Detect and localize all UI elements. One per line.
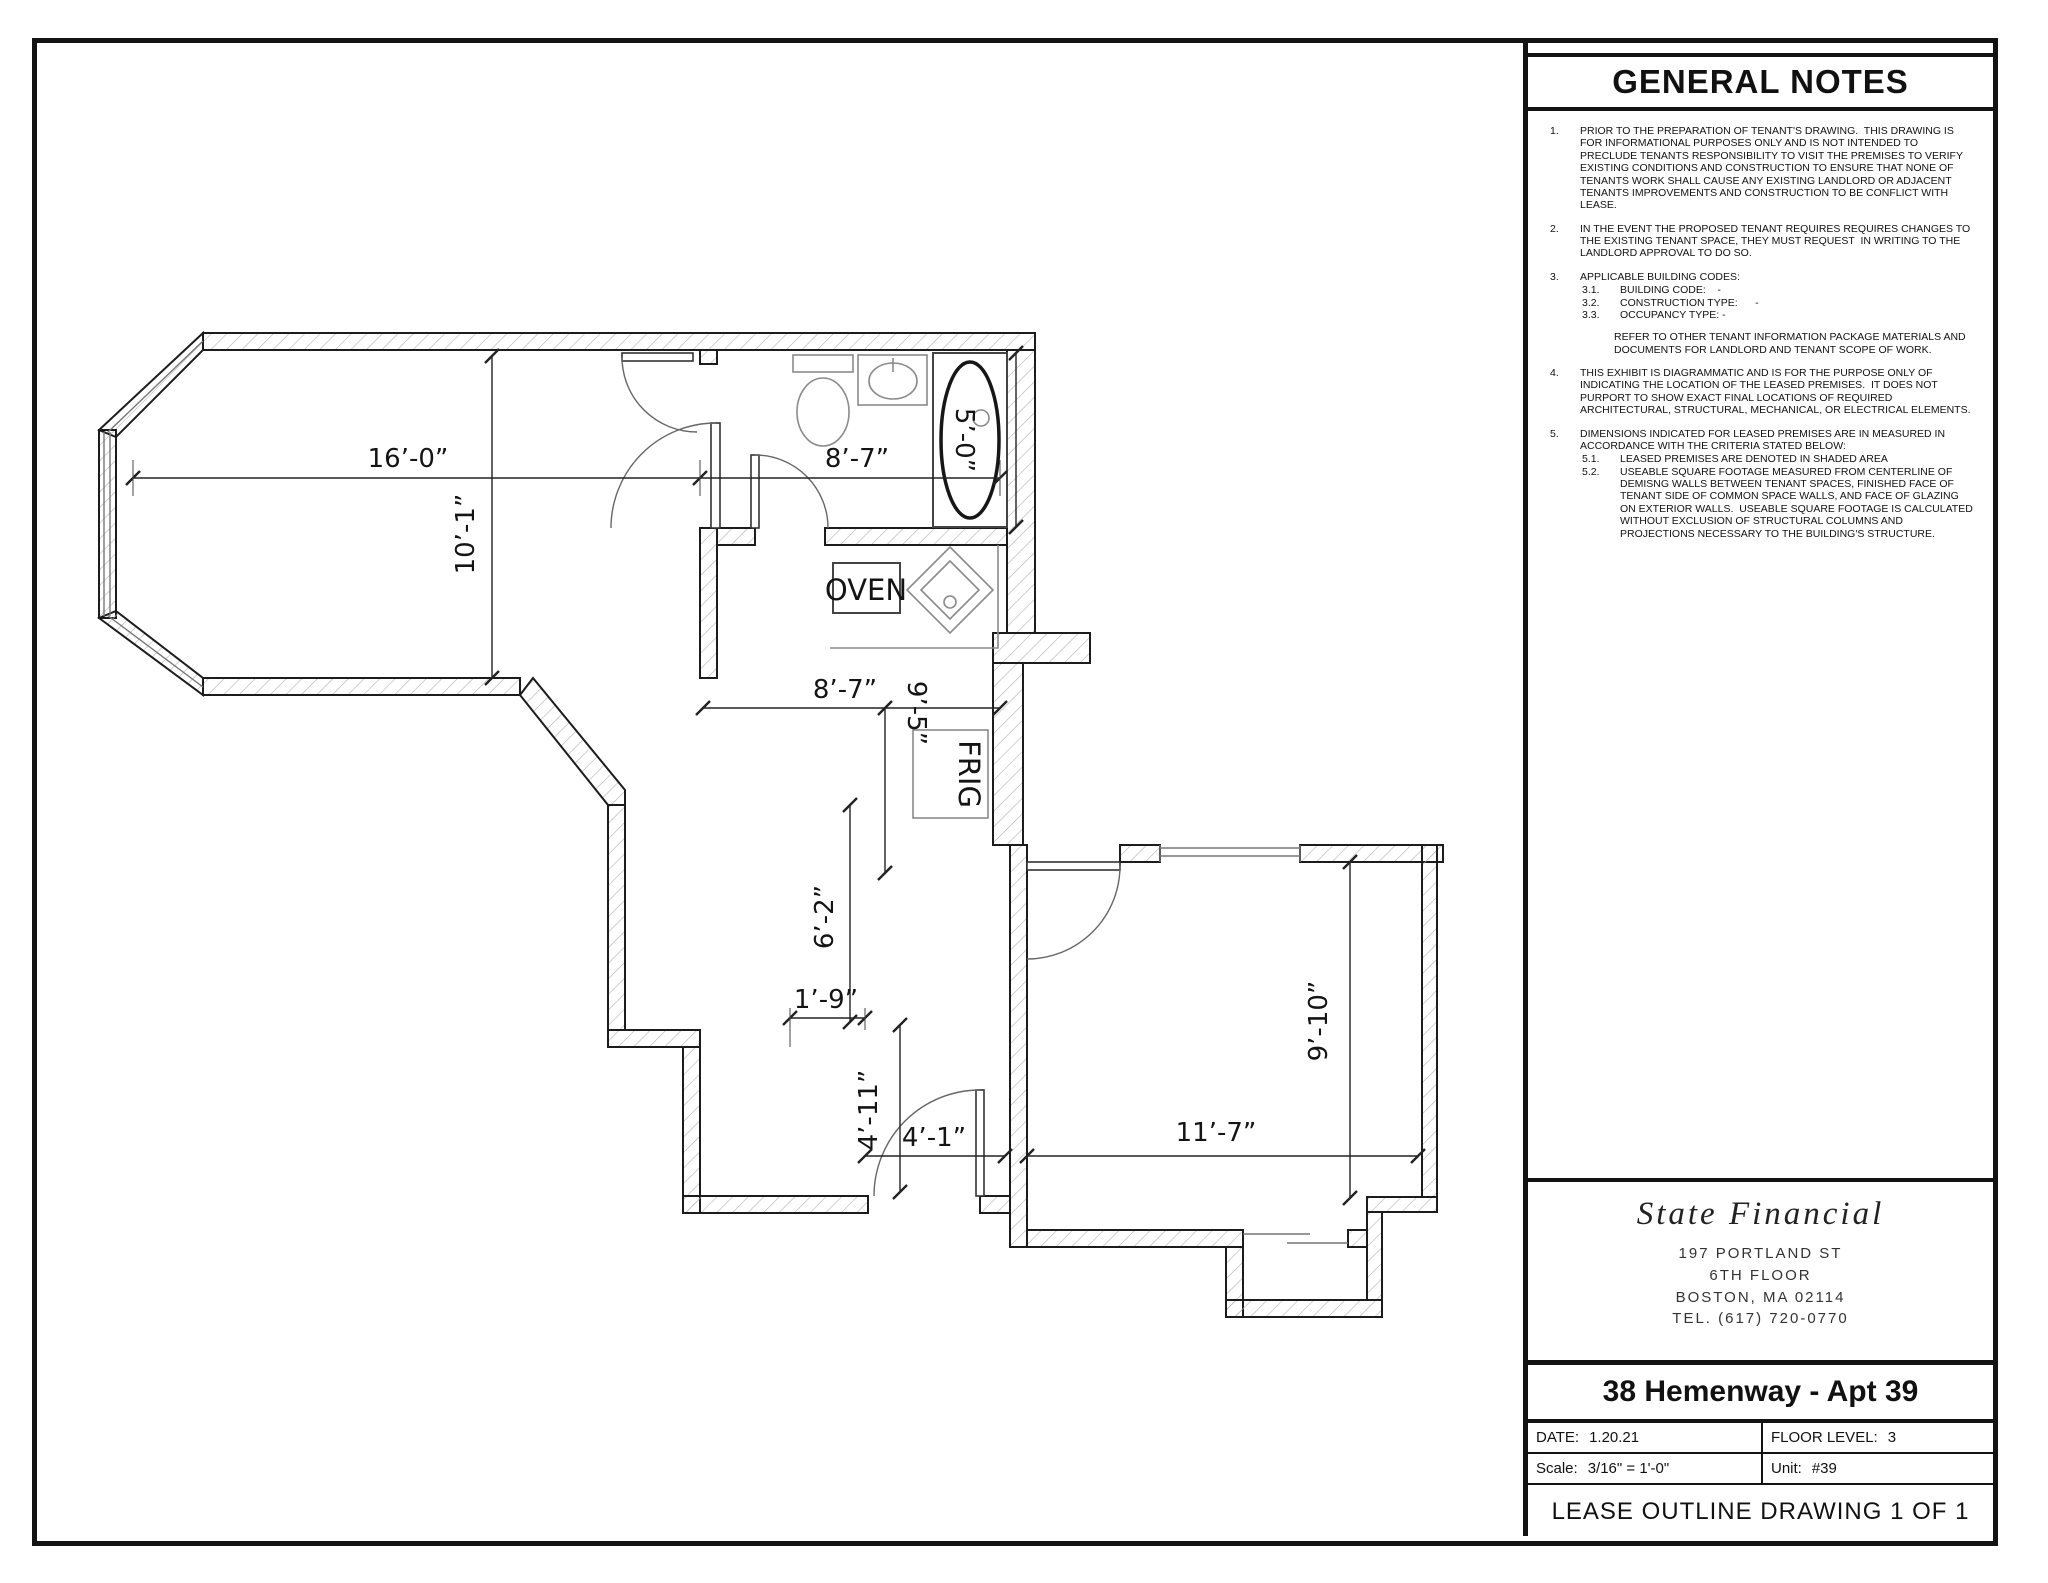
toilet-tank-icon [793,355,853,372]
kitchen-sink-basin-icon [921,561,979,619]
dim-kitchen-width: 8’-7” [813,675,877,705]
wall-bedroom-left [1010,845,1027,1247]
oven-label: OVEN [825,573,907,607]
dimension-lines [126,346,1425,1205]
dim-hall-jog: 1’-9” [794,985,858,1015]
general-notes-list: 1. PRIOR TO THE PREPARATION OF TENANT'S … [1528,117,1993,551]
floor-level-cell: FLOOR LEVEL: 3 [1763,1423,1993,1454]
bathroom-door-leaf [751,455,759,528]
wall-entry-left [683,1047,700,1213]
living-door-leaf [622,353,693,361]
note-3-3: 3.3. OCCUPANCY TYPE: - [1580,309,1975,321]
address-line-2: 6TH FLOOR [1528,1265,1993,1287]
scale-value: 3/16" = 1'-0" [1588,1460,1669,1477]
wall-alcove-right [1367,1212,1382,1300]
floor-level-value: 3 [1888,1429,1896,1446]
wall-right-exterior [1007,350,1035,633]
wall-bay-left [99,430,116,618]
wall-alcove-bottom [1226,1300,1382,1317]
dim-hall-length: 6’-2” [810,885,840,949]
wall-bay-top-diagonal [99,333,203,437]
unit-value: #39 [1812,1460,1837,1477]
note-4: 4. THIS EXHIBIT IS DIAGRAMMATIC AND IS F… [1550,367,1975,417]
dim-living-width: 16’-0” [368,444,449,474]
wall-bedroom-bottom-step [1348,1230,1367,1247]
wall-corridor-left [608,805,625,1030]
walls [99,333,1443,1317]
living-door-arc [622,357,697,432]
dim-entry-depth: 4’-11” [854,1070,884,1151]
wall-bedroom-top-a [1120,845,1160,862]
windows [104,341,1348,1243]
wall-top [203,333,1035,350]
wall-bath-bottom-b [825,528,1007,545]
bathroom-door-arc [755,455,828,528]
toilet-bowl-icon [797,378,849,446]
kitchen-door-leaf [711,423,720,528]
info-grid: DATE: 1.20.21 FLOOR LEVEL: 3 Scale: 3/16… [1528,1423,1993,1485]
note-3-extra: REFER TO OTHER TENANT INFORMATION PACKAG… [1614,331,1975,356]
address-line-3: BOSTON, MA 02114 [1528,1287,1993,1309]
kitchen-sink-drain-icon [944,596,956,608]
note-5: 5. DIMENSIONS INDICATED FOR LEASED PREMI… [1550,428,1975,540]
dim-kitchen-depth: 9’-5” [901,681,931,745]
dim-entry-width: 4’-1” [902,1123,966,1153]
drawing-title: LEASE OUTLINE DRAWING 1 OF 1 [1528,1487,1993,1536]
dim-living-depth: 10’-1” [451,494,481,575]
wall-corridor-jog [608,1030,700,1047]
frig-label: FRIG [952,740,986,808]
bay-window-bottom-icon [107,615,203,687]
wall-living-bottom [203,678,520,695]
wall-shaft-horizontal [993,633,1090,663]
wall-bedroom-right [1422,845,1437,1197]
dim-bath-width: 8’-7” [825,444,889,474]
dim-bedroom-depth: 9’-10” [1304,981,1334,1062]
note-2: 2. IN THE EVENT THE PROPOSED TENANT REQU… [1550,223,1975,260]
unit-cell: Unit: #39 [1763,1454,1993,1485]
note-3: 3. APPLICABLE BUILDING CODES: 3.1. BUILD… [1550,271,1975,356]
wall-living-right [700,528,717,678]
entry-door-leaf [976,1090,984,1196]
wall-bedroom-bottom-right [1367,1197,1437,1212]
title-block-panel: GENERAL NOTES 1. PRIOR TO THE PREPARATIO… [1523,43,1993,1536]
general-notes-header: GENERAL NOTES [1528,53,1993,111]
company-name: State Financial [1528,1196,1993,1233]
note-3-2: 3.2. CONSTRUCTION TYPE: - [1580,297,1975,309]
wall-living-right-stub [700,350,717,364]
company-address: 197 PORTLAND ST 6TH FLOOR BOSTON, MA 021… [1528,1243,1993,1330]
scale-cell: Scale: 3/16" = 1'-0" [1528,1454,1763,1485]
date-value: 1.20.21 [1589,1429,1639,1446]
wall-entry-bottom-left [683,1196,868,1213]
note-5-2: 5.2. USEABLE SQUARE FOOTAGE MEASURED FRO… [1580,466,1975,540]
dimension-labels: 16’-0” 8’-7” 10’-1” 5’-0” 8’-7” 9’-5” 6’… [368,408,1334,1153]
wall-bath-bottom-a [717,528,755,545]
address-line-4: TEL. (617) 720-0770 [1528,1308,1993,1330]
note-1: 1. PRIOR TO THE PREPARATION OF TENANT'S … [1550,125,1975,212]
dim-bedroom-width: 11’-7” [1176,1118,1257,1148]
wall-shaft-vertical [993,663,1023,845]
bay-window-top-icon [107,341,203,433]
dim-tub-length: 5’-0” [949,408,979,472]
note-3-1: 3.1. BUILDING CODE: - [1580,284,1975,296]
address-line-1: 197 PORTLAND ST [1528,1243,1993,1265]
wall-corridor-diagonal [520,678,625,805]
wall-entry-bottom-right [980,1196,1010,1213]
note-5-1: 5.1. LEASED PREMISES ARE DENOTED IN SHAD… [1580,453,1975,465]
date-cell: DATE: 1.20.21 [1528,1423,1763,1454]
company-block: State Financial 197 PORTLAND ST 6TH FLOO… [1528,1178,1993,1360]
bedroom-door-leaf [1027,862,1120,870]
bedroom-door-arc [1027,866,1120,959]
wall-bedroom-bottom-left [1027,1230,1243,1247]
project-title: 38 Hemenway - Apt 39 [1528,1360,1993,1423]
lease-outline-sheet: 16’-0” 8’-7” 10’-1” 5’-0” 8’-7” 9’-5” 6’… [0,0,2048,1583]
general-notes-title: GENERAL NOTES [1612,63,1909,101]
wall-bay-bottom-diagonal [99,611,203,695]
